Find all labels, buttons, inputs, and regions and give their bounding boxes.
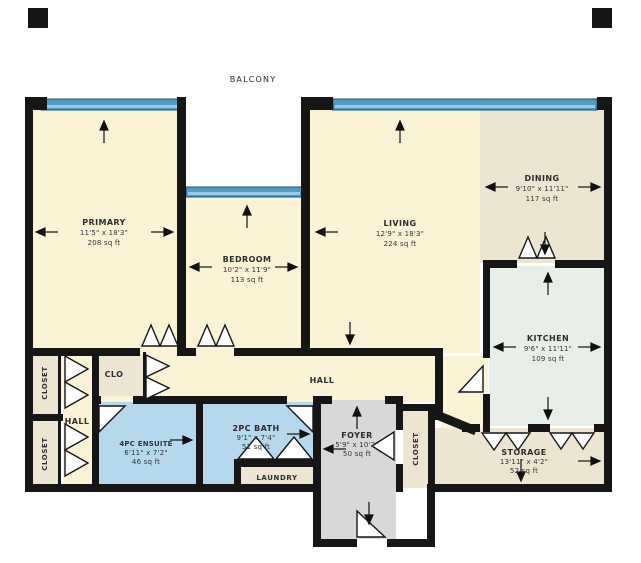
floor-plan-drawing: BALCONY PRIMARY 11'5" x 18'3" 208 sq ft …: [0, 0, 641, 563]
window-living-dining-inner: [335, 105, 595, 108]
dining-dims: 9'10" x 11'11": [516, 185, 569, 193]
wall-segment: [25, 348, 140, 356]
wall-segment: [483, 394, 490, 432]
wall-segment: [313, 484, 321, 547]
ensuite-label: 4PC ENSUITE: [119, 440, 172, 448]
bath-label: 2PC BATH: [232, 424, 279, 433]
wall-segment: [25, 97, 33, 492]
room-primary-area: [33, 103, 179, 353]
wall-segment: [178, 348, 196, 356]
bedroom-sqft: 113 sq ft: [231, 276, 264, 284]
wall-segment: [199, 396, 287, 404]
wall-segment: [462, 424, 480, 432]
dining-label: DINING: [525, 174, 560, 183]
kitchen-dims: 9'6" x 11'11": [524, 345, 572, 353]
living-dims: 12'9" x 18'3": [376, 230, 424, 238]
living-label: LIVING: [384, 219, 417, 228]
primary-label: PRIMARY: [82, 218, 125, 227]
hall-label: HALL: [310, 376, 335, 385]
clo-label: CLO: [105, 370, 124, 379]
balcony-post-left: [28, 8, 48, 28]
closet-left-upper-label: CLOSET: [41, 366, 49, 400]
storage-sqft: 52 sq ft: [510, 467, 538, 475]
dining-sqft: 117 sq ft: [526, 195, 559, 203]
foyer-label: FOYER: [341, 431, 372, 440]
kitchen-sqft: 109 sq ft: [532, 355, 565, 363]
window-bedroom-inner: [188, 192, 300, 195]
wall-segment: [234, 348, 443, 356]
wall-segment: [428, 404, 435, 492]
wall-segment: [177, 97, 186, 356]
wall-segment: [196, 396, 203, 492]
wall-segment: [528, 424, 550, 432]
living-sqft: 224 sq ft: [384, 240, 417, 248]
wall-segment: [604, 97, 612, 492]
foyer-sqft: 50 sq ft: [343, 450, 371, 458]
primary-sqft: 208 sq ft: [88, 239, 121, 247]
floor-plan-page: BALCONY PRIMARY 11'5" x 18'3" 208 sq ft …: [0, 0, 641, 563]
wall-segment: [435, 348, 443, 420]
wall-segment: [555, 260, 612, 268]
wall-segment: [133, 396, 199, 404]
balcony-post-right: [592, 8, 612, 28]
wall-segment: [301, 97, 333, 110]
room-dining-area: [480, 104, 606, 263]
wall-segment: [483, 260, 490, 358]
window-primary-inner: [43, 105, 178, 108]
wall-segment: [25, 484, 321, 492]
wall-segment: [427, 484, 435, 547]
wall-segment: [234, 459, 317, 467]
ensuite-dims: 6'11" x 7'2": [124, 449, 168, 457]
laundry-label: LAUNDRY: [256, 474, 298, 482]
wall-segment: [427, 484, 612, 492]
ensuite-sqft: 46 sq ft: [132, 458, 160, 466]
bath-dims: 9'1" x 7'4": [237, 434, 276, 442]
storage-label: STORAGE: [501, 448, 546, 457]
bath-sqft: 51 sq ft: [242, 443, 270, 451]
wall-segment: [301, 97, 310, 356]
wall-segment: [396, 464, 403, 492]
storage-dims: 13'11" x 4'2": [500, 458, 548, 466]
bedroom-dims: 10'2" x 11'9": [223, 266, 271, 274]
primary-dims: 11'5" x 18'3": [80, 229, 128, 237]
wall-segment: [396, 396, 403, 430]
bedroom-label: BEDROOM: [223, 255, 272, 264]
wall-segment: [396, 404, 435, 411]
window-primary: [41, 99, 180, 110]
wall-segment: [313, 539, 357, 547]
balcony-label: BALCONY: [230, 75, 277, 84]
window-living-dining: [333, 99, 597, 110]
wall-segment: [92, 348, 99, 492]
foyer-dims: 5'9" x 10'2": [335, 441, 379, 449]
closet-foyer-label: CLOSET: [412, 432, 420, 466]
hall-left-label: HALL: [65, 417, 90, 426]
kitchen-label: KITCHEN: [527, 334, 569, 343]
closet-left-lower-label: CLOSET: [41, 437, 49, 471]
wall-segment: [313, 396, 321, 492]
wall-segment: [594, 424, 604, 432]
wall-segment: [234, 459, 241, 492]
room-living-area: [308, 103, 480, 353]
closet-opening-line: [58, 348, 61, 492]
wall-segment: [25, 414, 63, 421]
